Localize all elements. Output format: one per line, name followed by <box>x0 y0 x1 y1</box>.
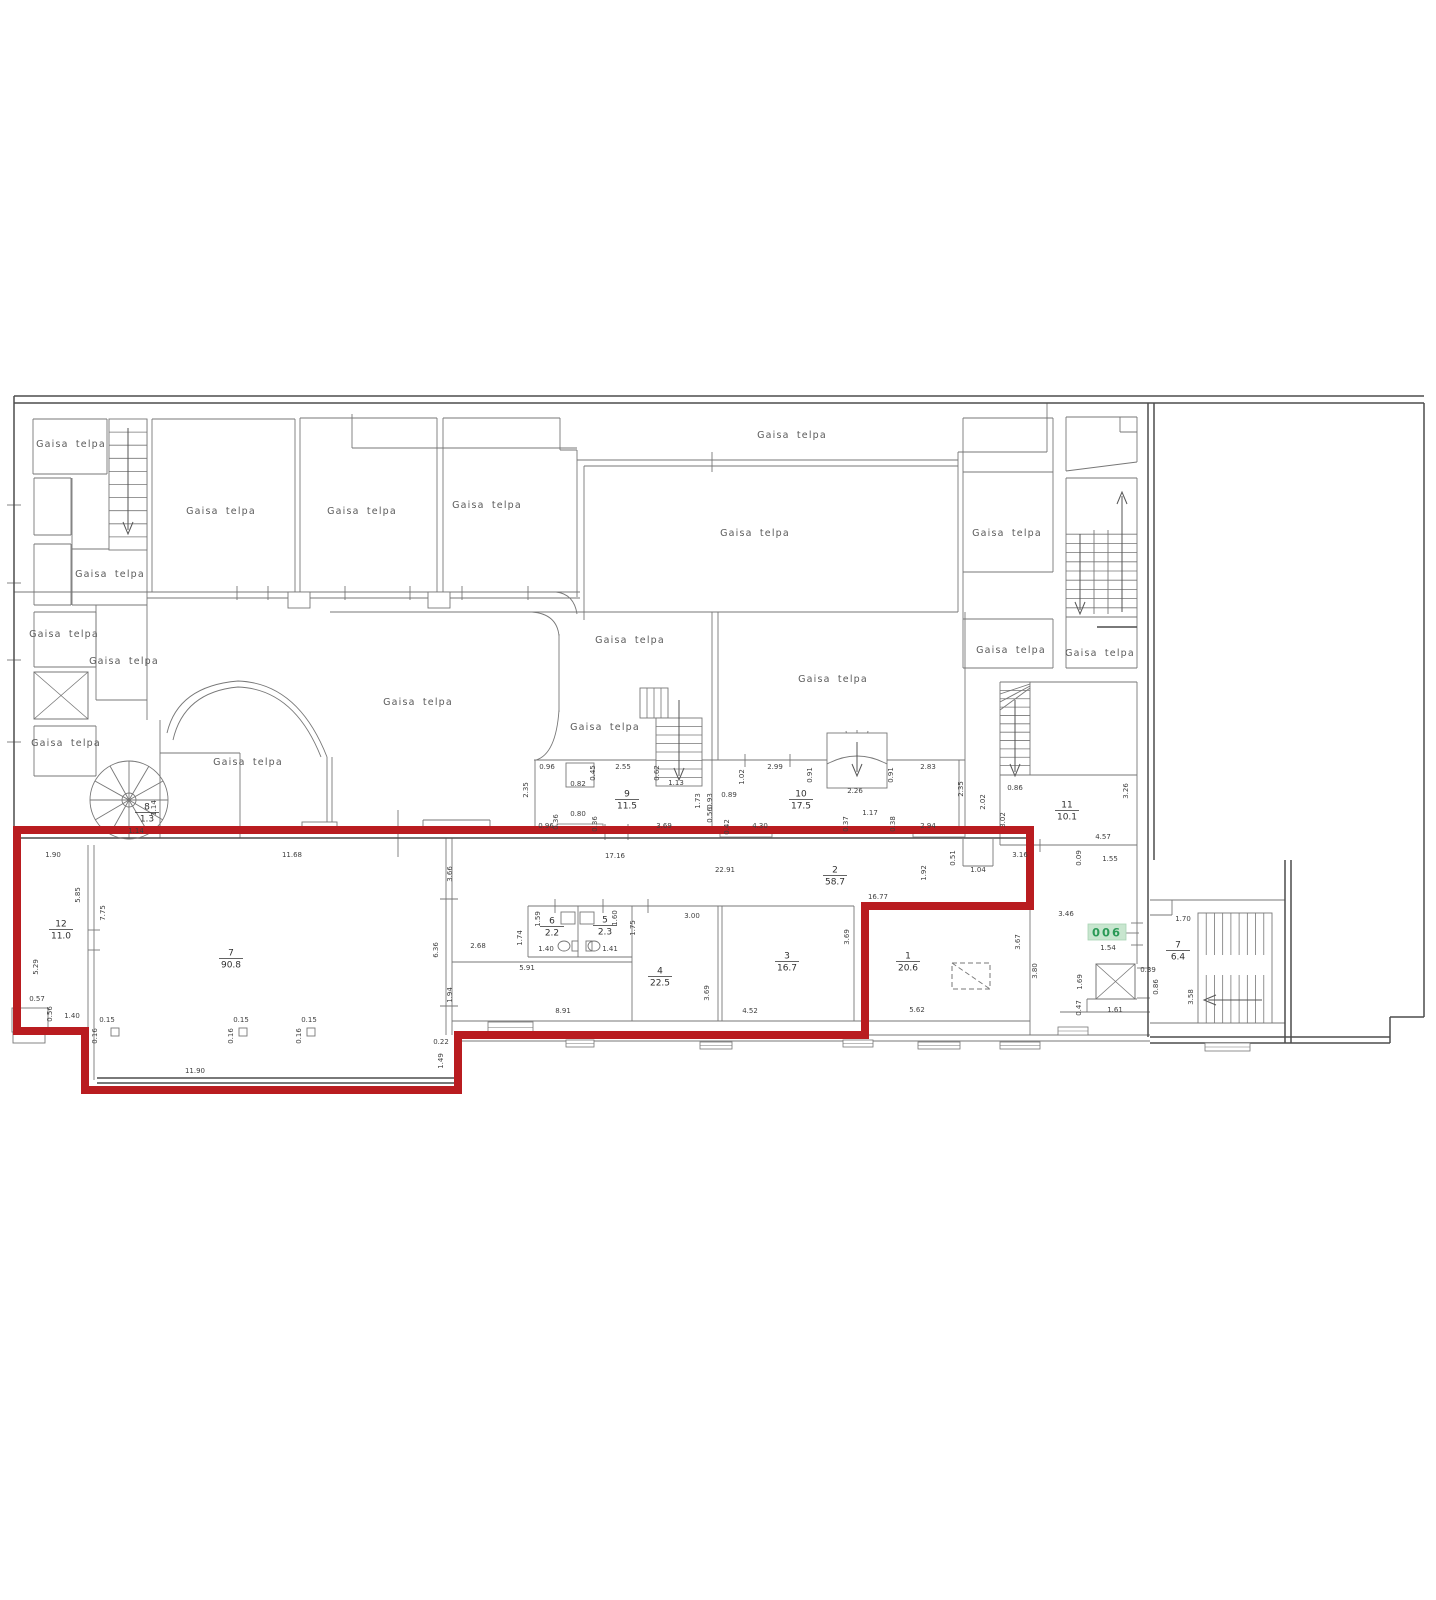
dimension-label: 3.69 <box>703 985 711 1001</box>
dimension-label: 1.55 <box>1102 855 1118 863</box>
room-number: 12 <box>55 920 66 930</box>
dimension-label: 3.66 <box>446 866 454 882</box>
highlight-outline-layer <box>17 830 1030 1090</box>
room-type-label: Gaisa telpa <box>213 757 283 768</box>
dimension-label: 0.89 <box>721 791 737 799</box>
dimension-label: 3.26 <box>1122 783 1130 799</box>
dimension-label: 0.37 <box>842 816 850 832</box>
plan-rect <box>428 592 450 608</box>
dashed-opening <box>952 963 990 989</box>
room-badge: 006 <box>1092 926 1122 940</box>
dimension-label: 1.94 <box>446 987 454 1003</box>
dimension-label: 0.15 <box>301 1016 317 1024</box>
room-number: 11 <box>1061 801 1072 811</box>
stair-direction-arrow <box>1117 492 1127 612</box>
dimension-label: 11.68 <box>282 851 302 859</box>
dimension-label: 0.09 <box>1075 850 1083 866</box>
room-type-label: Gaisa telpa <box>75 569 145 580</box>
dimension-label: 2.02 <box>979 794 987 810</box>
dimension-label: 0.38 <box>889 816 897 832</box>
dimension-label: 1.13 <box>668 779 684 787</box>
dimension-label: 3.02 <box>999 812 1007 828</box>
room-type-label: Gaisa telpa <box>976 645 1046 656</box>
plan-curve <box>536 710 559 760</box>
dimension-label: 1.90 <box>45 851 61 859</box>
room-area: 2.3 <box>598 928 612 938</box>
dimension-label: 6.36 <box>432 942 440 958</box>
dimension-label: 22.91 <box>715 866 735 874</box>
plan-curve <box>556 592 577 614</box>
room-number: 9 <box>624 790 630 800</box>
dimension-label: 4.57 <box>1095 833 1111 841</box>
stair-direction-arrow <box>1075 534 1085 614</box>
dimension-label: 1.59 <box>534 911 542 927</box>
dimension-label: 0.42 <box>723 819 731 835</box>
wall-line <box>1000 684 1030 694</box>
room-number: 3 <box>784 952 790 962</box>
column-marker <box>111 1028 119 1036</box>
dimension-label: 0.96 <box>539 763 555 771</box>
dimension-label: 17.16 <box>605 852 626 860</box>
dimension-label: 2.35 <box>957 781 965 797</box>
dimension-label: 16.77 <box>868 893 888 901</box>
room-number: 1 <box>905 952 911 962</box>
dimension-label: 1.40 <box>538 945 554 953</box>
dimension-label: 8.91 <box>555 1007 571 1015</box>
dimension-label: 1.75 <box>629 920 637 936</box>
room-type-label: Gaisa telpa <box>327 506 397 517</box>
dimension-label: 0.22 <box>433 1038 449 1046</box>
dimension-label: 3.67 <box>1014 934 1022 950</box>
room-type-label: Gaisa telpa <box>186 506 256 517</box>
dimension-label: 3.00 <box>684 912 700 920</box>
dashed-opening-diagonal <box>952 963 990 989</box>
dimension-label: 1.41 <box>602 945 618 953</box>
dimension-label: 5.62 <box>909 1006 925 1014</box>
dimension-label: 3.80 <box>1031 963 1039 979</box>
dimension-label: 0.16 <box>227 1028 235 1044</box>
plan-rect <box>1198 913 1272 1023</box>
dimension-label: 0.91 <box>806 767 814 783</box>
room-type-label: Gaisa telpa <box>383 697 453 708</box>
dimension-label: 0.93 <box>706 793 714 809</box>
plan-rect <box>586 941 592 951</box>
dimension-label: 0.56 <box>46 1006 54 1022</box>
dimension-label: 1.61 <box>1107 1006 1123 1014</box>
plan-rect <box>561 912 575 924</box>
dimension-label: 2.94 <box>920 822 936 830</box>
dimension-label: 3.69 <box>843 929 851 945</box>
room-type-label: Gaisa telpa <box>720 528 790 539</box>
room-area: 16.7 <box>777 964 797 974</box>
dimension-label: 0.16 <box>295 1028 303 1044</box>
room-number: 6 <box>549 917 555 927</box>
plan-curve <box>558 941 570 951</box>
dimension-label: 0.82 <box>570 780 586 788</box>
room-area: 10.1 <box>1057 813 1077 823</box>
room-area: 90.8 <box>221 961 241 971</box>
dimension-label: 1.73 <box>694 793 702 809</box>
room-type-label: Gaisa telpa <box>757 430 827 441</box>
dimension-label: 0.86 <box>1152 979 1160 995</box>
dimension-label: 1.92 <box>920 865 928 881</box>
dimension-label: 2.35 <box>522 782 530 798</box>
dimension-label: 0.45 <box>589 765 597 781</box>
dimension-label: 0.96 <box>538 822 554 830</box>
dimension-label: 1.49 <box>437 1053 445 1069</box>
dimension-label: 5.91 <box>519 964 535 972</box>
dimension-label: 1.02 <box>738 769 746 785</box>
dimension-label: 1.74 <box>516 930 524 946</box>
room-type-label: Gaisa telpa <box>29 629 99 640</box>
dimension-label: 1.17 <box>862 809 878 817</box>
room-type-label: Gaisa telpa <box>452 500 522 511</box>
room-area: 2.2 <box>545 929 559 939</box>
plan-curve <box>532 612 559 636</box>
plan-rect <box>288 592 310 608</box>
dimension-label: 0.57 <box>29 995 45 1003</box>
room-area: 11.0 <box>51 932 71 942</box>
room-type-label: Gaisa telpa <box>595 635 665 646</box>
floor-plan-drawing: Gaisa telpaGaisa telpaGaisa telpaGaisa t… <box>0 0 1436 1600</box>
room-number: 10 <box>795 790 807 800</box>
dimension-label: 0.62 <box>653 765 661 781</box>
floor-plan-page: Gaisa telpaGaisa telpaGaisa telpaGaisa t… <box>0 0 1436 1600</box>
dimension-label: 1.69 <box>1076 974 1084 990</box>
plan-curve <box>167 681 327 757</box>
dimension-label: 0.86 <box>1007 784 1023 792</box>
dimension-label: 1.14 <box>150 800 158 816</box>
dimension-label: 3.46 <box>1058 910 1074 918</box>
dimension-label: 1.60 <box>611 910 619 926</box>
room-number: 7 <box>228 949 234 959</box>
wall-line <box>1066 462 1137 471</box>
dimension-label: 11.90 <box>185 1067 205 1075</box>
dimension-label: 5.85 <box>74 887 82 903</box>
column-marker <box>239 1028 247 1036</box>
room-type-label: Gaisa telpa <box>31 738 101 749</box>
plan-rect <box>580 912 594 924</box>
dimension-label: 2.26 <box>847 787 863 795</box>
room-type-label: Gaisa telpa <box>798 674 868 685</box>
dimension-label: 2.83 <box>920 763 936 771</box>
dimension-label: 0.39 <box>1140 966 1156 974</box>
walls-layer <box>7 396 1424 1083</box>
dimension-label: 0.47 <box>1075 1000 1083 1016</box>
dimension-label: 3.16 <box>1012 851 1028 859</box>
dimension-label: 0.16 <box>91 1028 99 1044</box>
dimension-label: 1.04 <box>970 866 986 874</box>
dimension-label: 0.15 <box>99 1016 115 1024</box>
dimension-label: 0.80 <box>570 810 586 818</box>
room-area: 6.4 <box>1171 953 1186 963</box>
dimension-label: 0.51 <box>949 850 957 866</box>
highlighted-unit-outline <box>17 830 1030 1090</box>
plan-curve <box>173 687 321 757</box>
dimension-label: 4.52 <box>742 1007 758 1015</box>
room-number: 5 <box>602 916 608 926</box>
dimension-label: 0.15 <box>233 1016 249 1024</box>
room-area: 22.5 <box>650 979 670 989</box>
dimension-label: 5.29 <box>32 959 40 975</box>
room-number: 7 <box>1175 941 1181 951</box>
dimension-label: 2.55 <box>615 763 631 771</box>
room-area: 17.5 <box>791 802 811 812</box>
dimension-label: 3.58 <box>1187 989 1195 1005</box>
dimension-label: 7.75 <box>99 905 107 921</box>
room-type-label: Gaisa telpa <box>972 528 1042 539</box>
dimension-label: 1.14 <box>128 827 144 835</box>
room-type-label: Gaisa telpa <box>1065 648 1135 659</box>
dimension-label: 4.30 <box>752 822 768 830</box>
room-type-label: Gaisa telpa <box>36 439 106 450</box>
room-type-label: Gaisa telpa <box>570 722 640 733</box>
dimension-label: 0.56 <box>706 807 714 823</box>
room-area: 58.7 <box>825 878 845 888</box>
room-number: 4 <box>657 967 663 977</box>
room-number: 2 <box>832 866 838 876</box>
plan-rect <box>572 941 578 951</box>
dimension-label: 1.54 <box>1100 944 1116 952</box>
dimension-label: 1.70 <box>1175 915 1191 923</box>
dimension-label: 1.40 <box>64 1012 80 1020</box>
room-area: 20.6 <box>898 964 918 974</box>
dimension-label: 3.69 <box>656 822 672 830</box>
room-area: 11.5 <box>617 802 637 812</box>
dimension-label: 0.36 <box>591 816 599 832</box>
dimension-label: 0.91 <box>887 767 895 783</box>
dimension-label: 2.68 <box>470 942 486 950</box>
column-marker <box>307 1028 315 1036</box>
stair-direction-arrow <box>1010 700 1020 776</box>
wall-line <box>1000 686 1030 702</box>
dimension-label: 2.99 <box>767 763 783 771</box>
room-type-label: Gaisa telpa <box>89 656 159 667</box>
labels-layer: Gaisa telpaGaisa telpaGaisa telpaGaisa t… <box>29 430 1195 1075</box>
